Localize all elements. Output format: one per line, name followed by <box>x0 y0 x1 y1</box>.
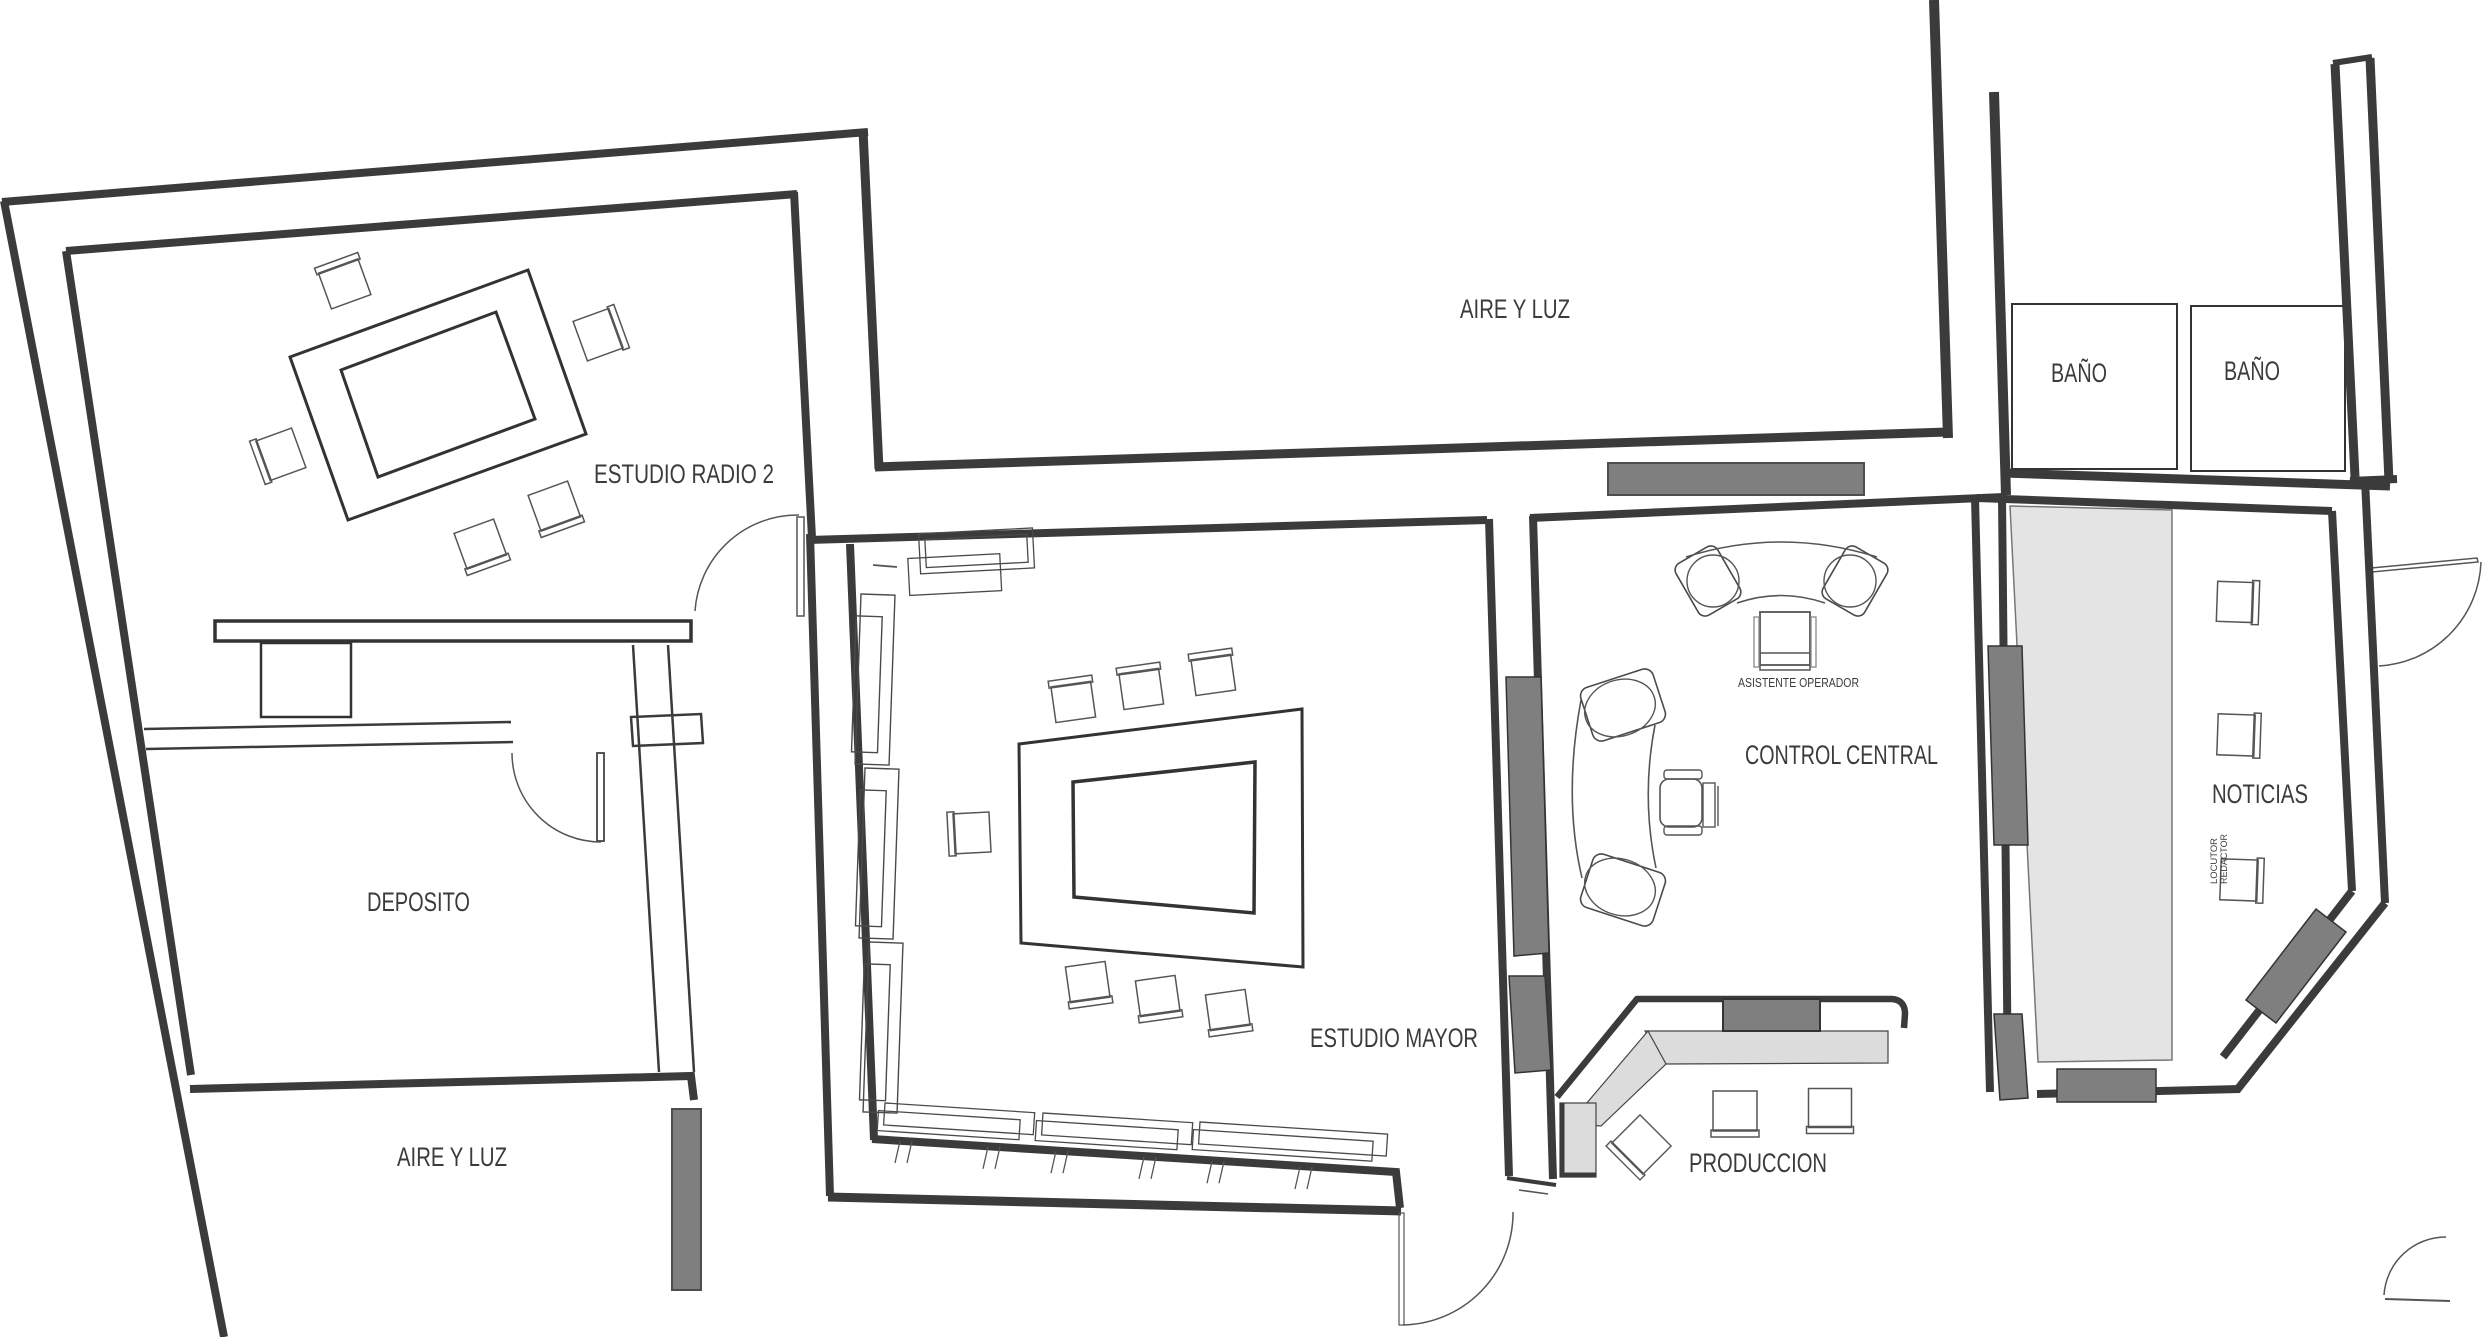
svg-text:LOCUTOR: LOCUTOR <box>2209 837 2219 884</box>
svg-text:BAÑO: BAÑO <box>2051 358 2107 388</box>
svg-text:REDACTOR: REDACTOR <box>2219 834 2229 884</box>
svg-text:AIRE Y LUZ: AIRE Y LUZ <box>397 1142 507 1172</box>
svg-text:ASISTENTE OPERADOR: ASISTENTE OPERADOR <box>1738 675 1859 690</box>
svg-text:DEPOSITO: DEPOSITO <box>367 887 470 917</box>
svg-text:PRODUCCION: PRODUCCION <box>1689 1148 1827 1178</box>
svg-text:BAÑO: BAÑO <box>2224 356 2280 386</box>
svg-text:AIRE Y LUZ: AIRE Y LUZ <box>1460 294 1570 324</box>
svg-text:NOTICIAS: NOTICIAS <box>2212 779 2308 809</box>
svg-text:CONTROL CENTRAL: CONTROL CENTRAL <box>1745 740 1938 770</box>
svg-text:ESTUDIO MAYOR: ESTUDIO MAYOR <box>1310 1023 1478 1053</box>
svg-text:ESTUDIO RADIO 2: ESTUDIO RADIO 2 <box>594 459 774 489</box>
